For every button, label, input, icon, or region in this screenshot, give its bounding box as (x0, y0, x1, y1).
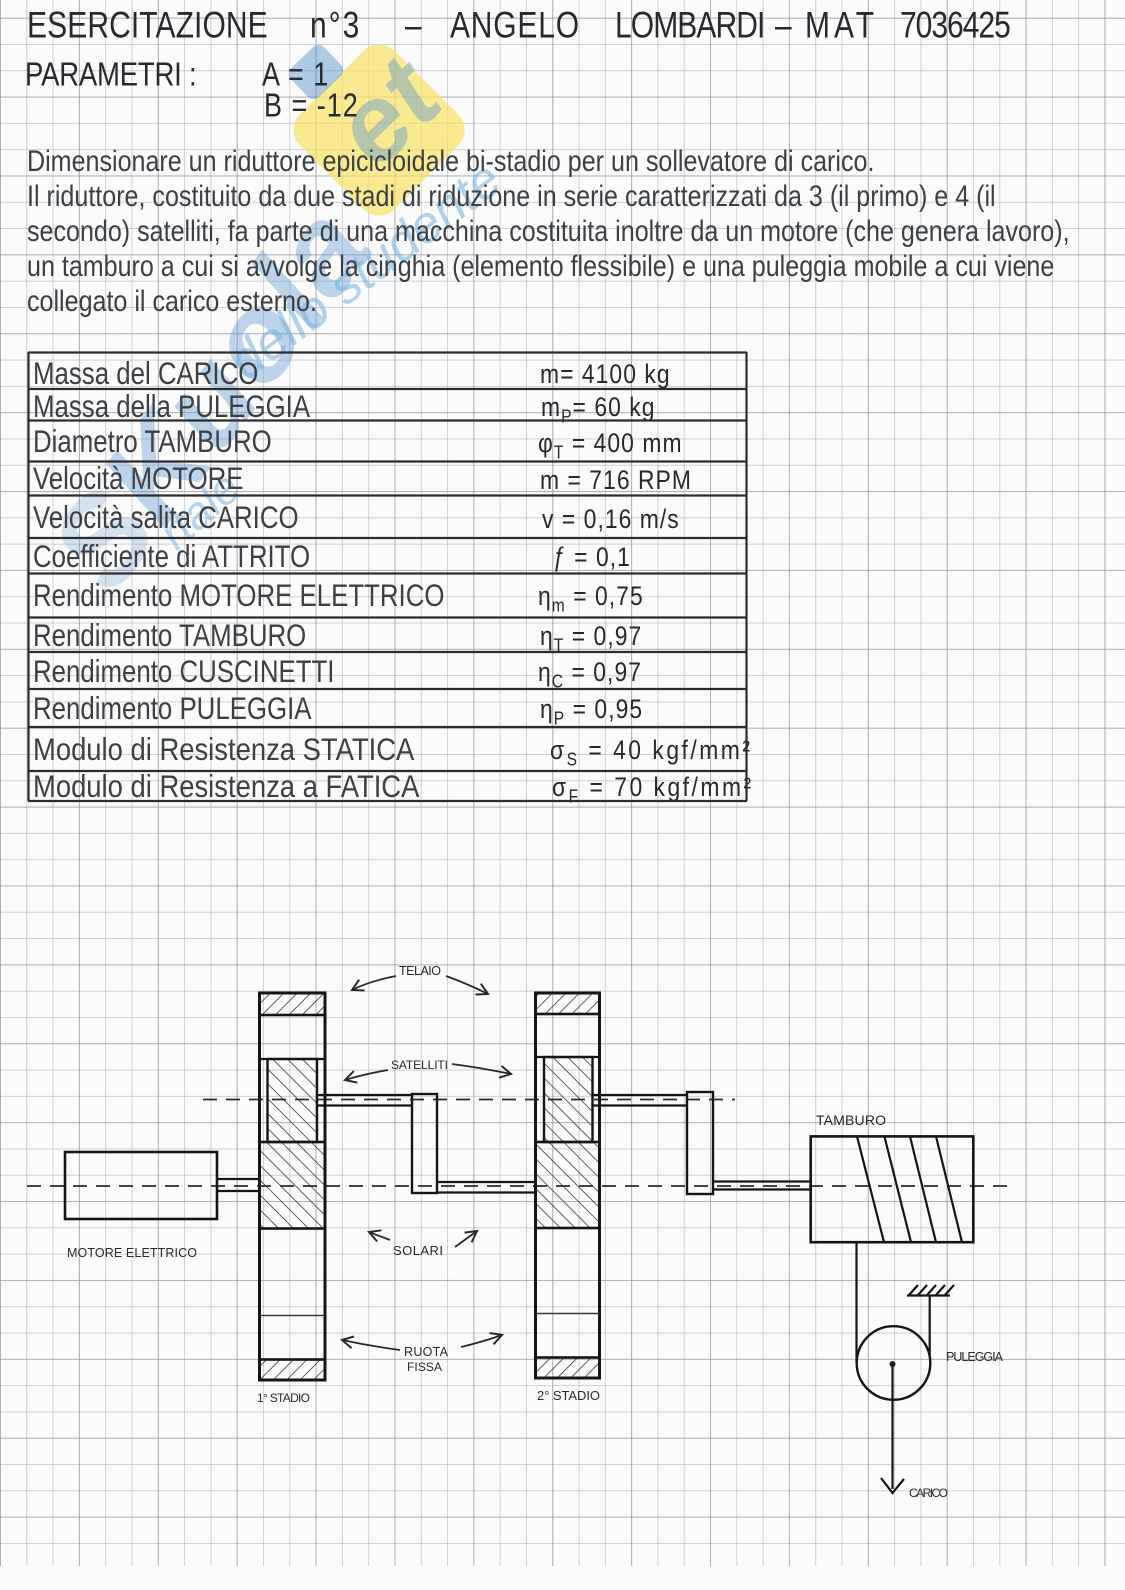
svg-text:TELAIO: TELAIO (399, 964, 441, 978)
svg-text:SATELLITI: SATELLITI (391, 1058, 448, 1072)
svg-text:2° STADIO: 2° STADIO (537, 1388, 600, 1403)
svg-text:MOTORE ELETTRICO: MOTORE ELETTRICO (67, 1246, 197, 1260)
svg-text:RUOTA: RUOTA (404, 1345, 449, 1359)
svg-text:1° STADIO: 1° STADIO (257, 1391, 310, 1405)
svg-text:TAMBURO: TAMBURO (816, 1112, 886, 1128)
svg-text:FISSA: FISSA (407, 1360, 442, 1374)
svg-text:CARICO: CARICO (909, 1486, 948, 1500)
svg-text:SOLARI: SOLARI (393, 1243, 443, 1258)
svg-text:PULEGGIA: PULEGGIA (946, 1350, 1004, 1364)
